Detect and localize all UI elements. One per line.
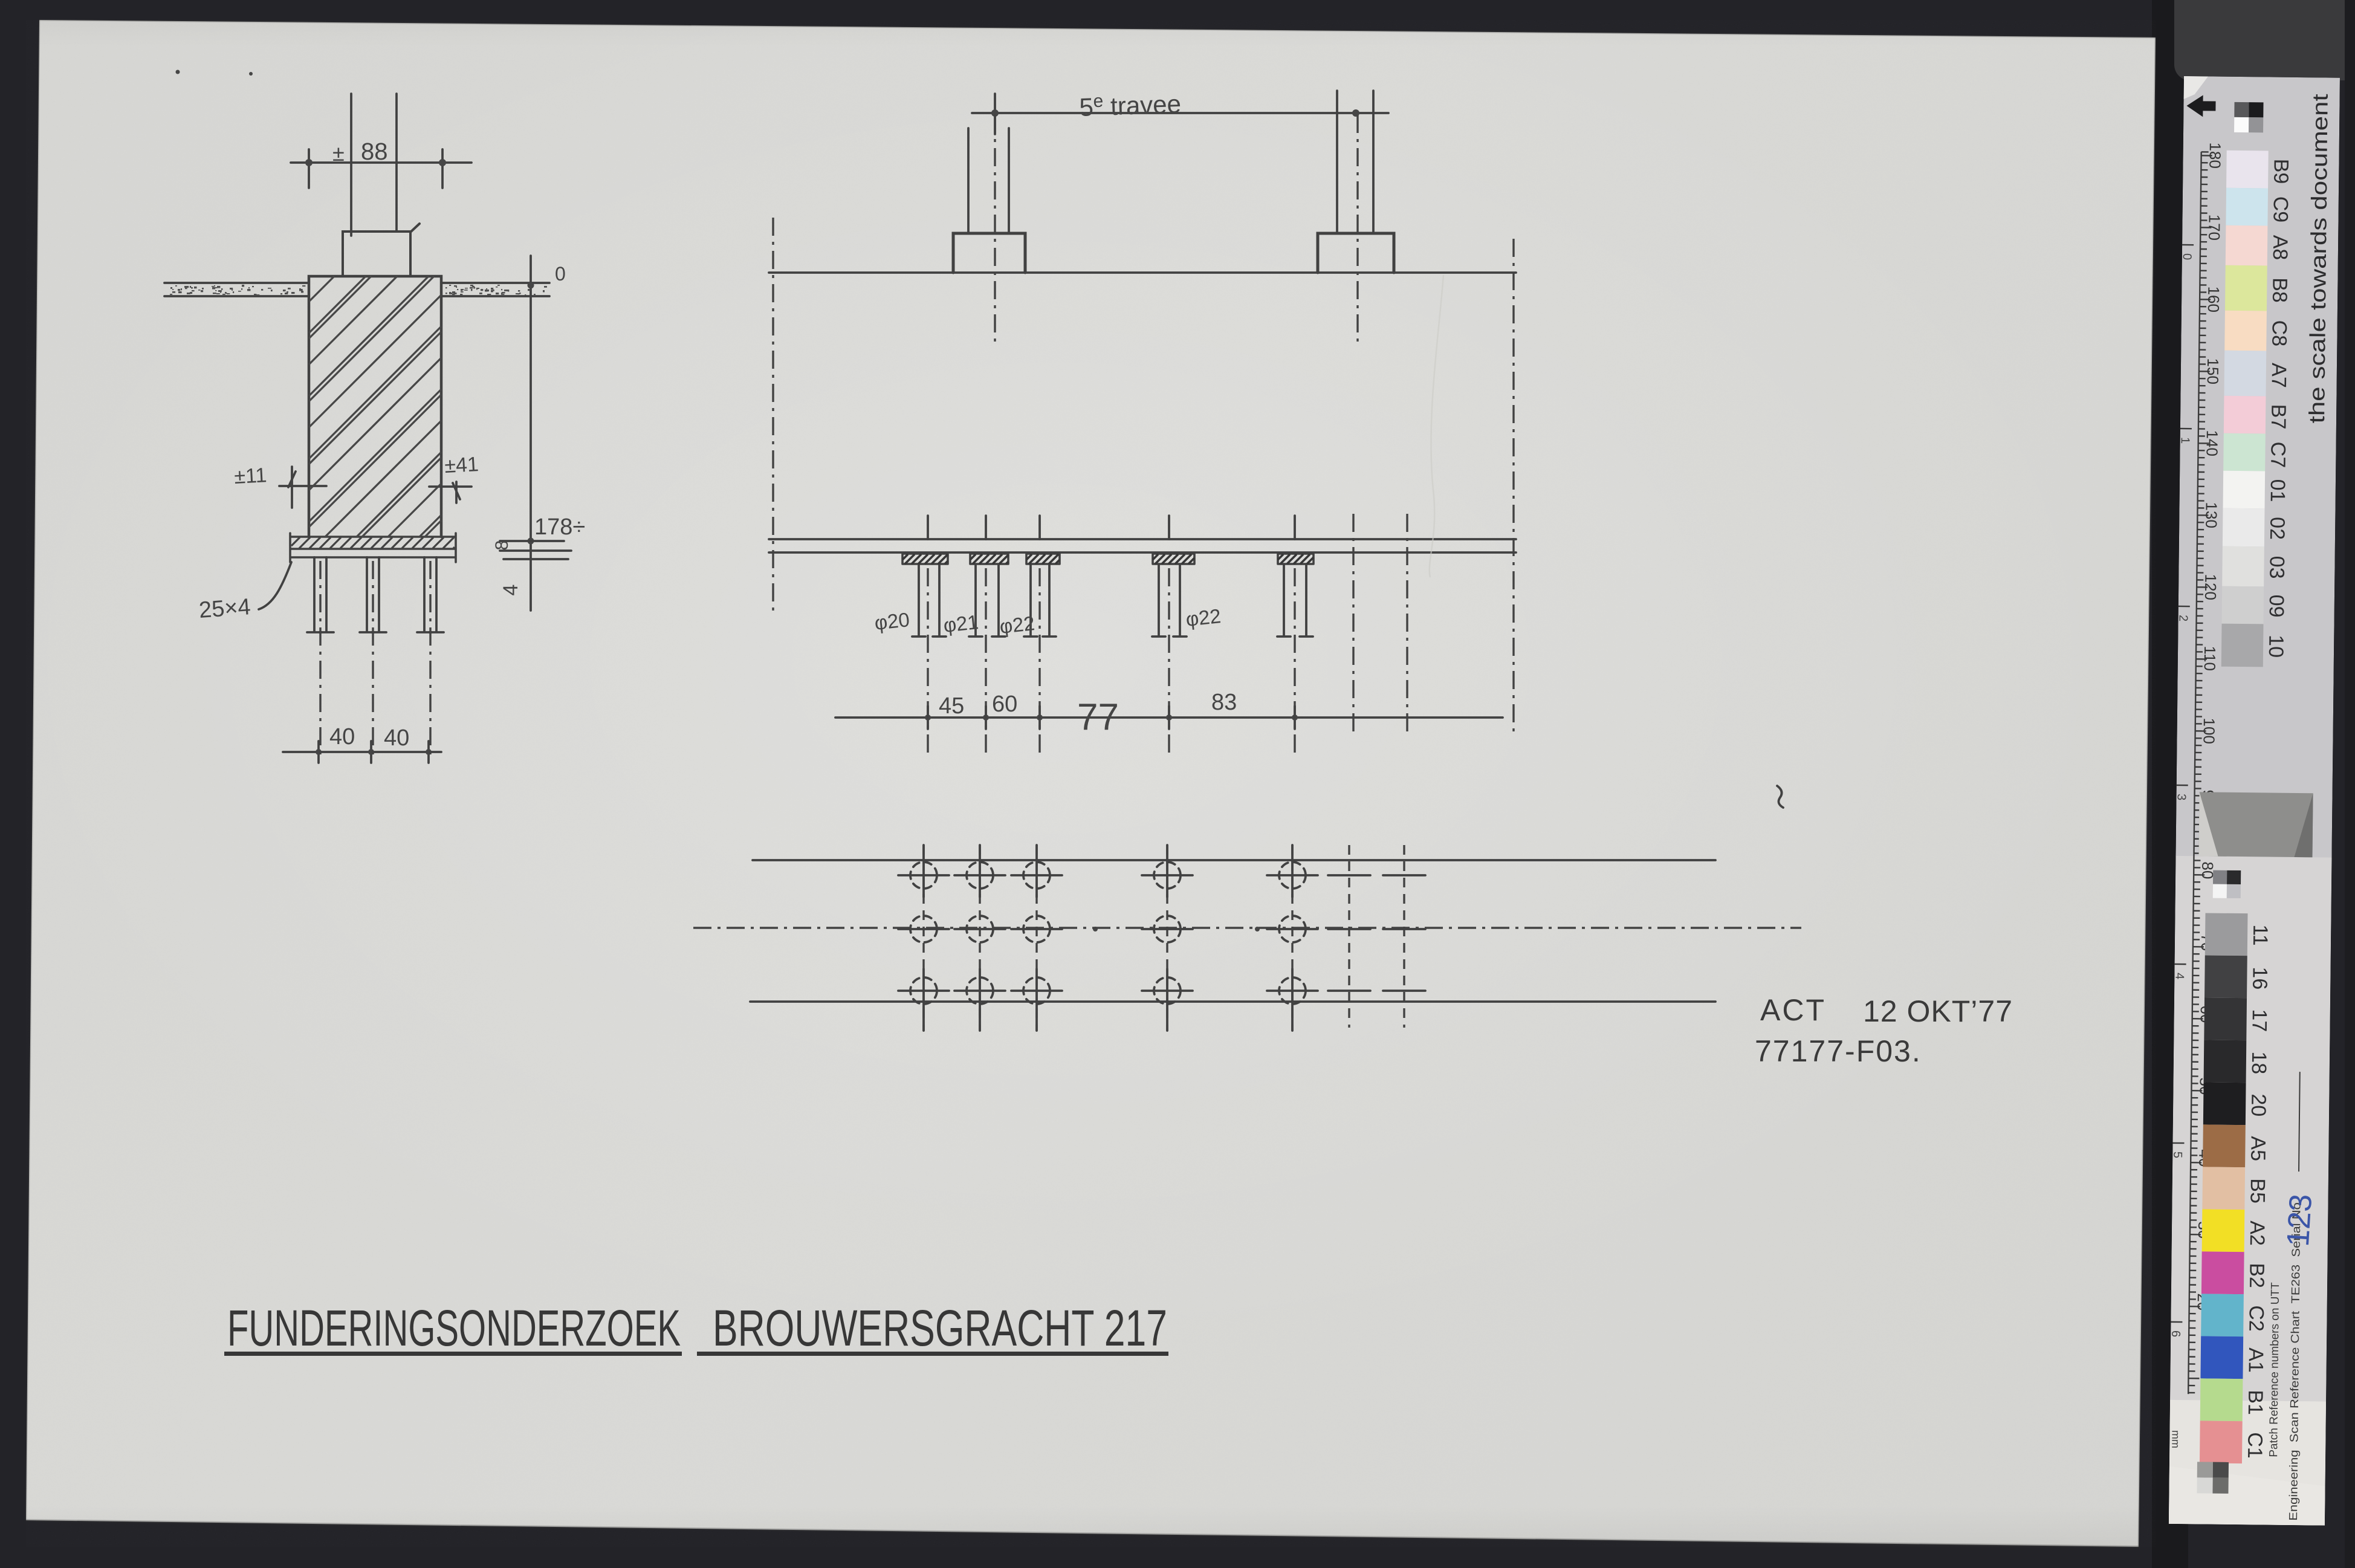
svg-text:B1: B1 (2244, 1390, 2267, 1415)
svg-text:83: 83 (1211, 690, 1237, 715)
svg-text:A7: A7 (2267, 363, 2290, 388)
svg-text:25×4: 25×4 (198, 594, 251, 623)
svg-text:40: 40 (384, 725, 409, 751)
svg-text:123: 123 (2281, 1193, 2319, 1248)
svg-text:1: 1 (2178, 437, 2192, 444)
svg-text:±11: ±11 (233, 464, 267, 488)
svg-text:77177-F03.: 77177-F03. (1755, 1034, 1922, 1068)
svg-text:BROUWERSGRACHT 217: BROUWERSGRACHT 217 (713, 1300, 1167, 1356)
svg-text:5: 5 (2171, 1152, 2184, 1158)
svg-text:A8: A8 (2269, 235, 2292, 260)
svg-text:A1: A1 (2244, 1347, 2267, 1373)
svg-text:±: ± (332, 141, 345, 166)
svg-text:±41: ±41 (444, 453, 479, 478)
svg-text:170: 170 (2205, 214, 2223, 241)
svg-text:FUNDERINGSONDERZOEK: FUNDERINGSONDERZOEK (227, 1300, 681, 1356)
svg-text:140: 140 (2203, 430, 2221, 456)
svg-text:B7: B7 (2267, 404, 2290, 429)
svg-text:ACT: ACT (1760, 993, 1826, 1027)
svg-text:16: 16 (2248, 967, 2271, 990)
svg-text:88: 88 (361, 138, 388, 165)
svg-text:2: 2 (2177, 615, 2190, 621)
svg-text:8: 8 (492, 540, 512, 551)
svg-text:φ21: φ21 (942, 611, 980, 637)
svg-text:11: 11 (2249, 924, 2272, 946)
svg-text:178÷: 178÷ (534, 514, 585, 540)
svg-text:C9: C9 (2269, 196, 2292, 222)
svg-text:B5: B5 (2246, 1178, 2269, 1204)
svg-text:12 OKT’77: 12 OKT’77 (1863, 994, 2013, 1028)
svg-text:B2: B2 (2245, 1263, 2268, 1288)
svg-text:09: 09 (2265, 594, 2288, 617)
svg-text:Patch Reference numbers on UTT: Patch Reference numbers on UTT (2267, 1282, 2282, 1457)
svg-text:C1: C1 (2243, 1432, 2266, 1459)
svg-text:10: 10 (2264, 635, 2287, 658)
svg-text:C8: C8 (2267, 320, 2290, 346)
svg-text:C2: C2 (2244, 1305, 2267, 1332)
svg-text:B9: B9 (2269, 158, 2292, 184)
svg-text:01: 01 (2266, 479, 2289, 502)
svg-text:180: 180 (2206, 142, 2224, 169)
svg-text:φ22: φ22 (1185, 604, 1222, 630)
svg-text:φ20: φ20 (873, 608, 911, 634)
svg-text:150: 150 (2204, 358, 2222, 384)
svg-text:φ22: φ22 (999, 612, 1036, 638)
svg-text:20: 20 (2247, 1093, 2270, 1116)
svg-text:77: 77 (1077, 696, 1119, 738)
svg-text:6: 6 (2169, 1330, 2182, 1337)
svg-text:100: 100 (2200, 718, 2218, 744)
svg-text:the scale towards document: the scale towards document (2304, 94, 2333, 423)
svg-text:0: 0 (555, 263, 566, 285)
svg-text:18: 18 (2247, 1051, 2270, 1074)
svg-text:17: 17 (2247, 1009, 2270, 1032)
svg-text:120: 120 (2201, 574, 2220, 600)
svg-text:0: 0 (2180, 253, 2194, 260)
svg-text:mm: mm (2169, 1430, 2182, 1448)
svg-text:160: 160 (2204, 286, 2223, 313)
svg-text:60: 60 (992, 692, 1017, 717)
svg-text:45: 45 (939, 693, 964, 719)
svg-text:03: 03 (2265, 556, 2288, 578)
svg-text:4: 4 (2172, 973, 2186, 979)
svg-text:02: 02 (2266, 517, 2289, 540)
svg-text:4: 4 (499, 585, 522, 596)
svg-text:110: 110 (2201, 646, 2219, 671)
svg-text:C7: C7 (2266, 441, 2289, 468)
svg-text:A2: A2 (2246, 1220, 2269, 1246)
svg-text:B8: B8 (2268, 277, 2291, 303)
svg-text:130: 130 (2202, 502, 2220, 528)
svg-text:40: 40 (329, 724, 355, 750)
svg-text:A5: A5 (2246, 1136, 2269, 1161)
svg-text:3: 3 (2174, 794, 2188, 800)
